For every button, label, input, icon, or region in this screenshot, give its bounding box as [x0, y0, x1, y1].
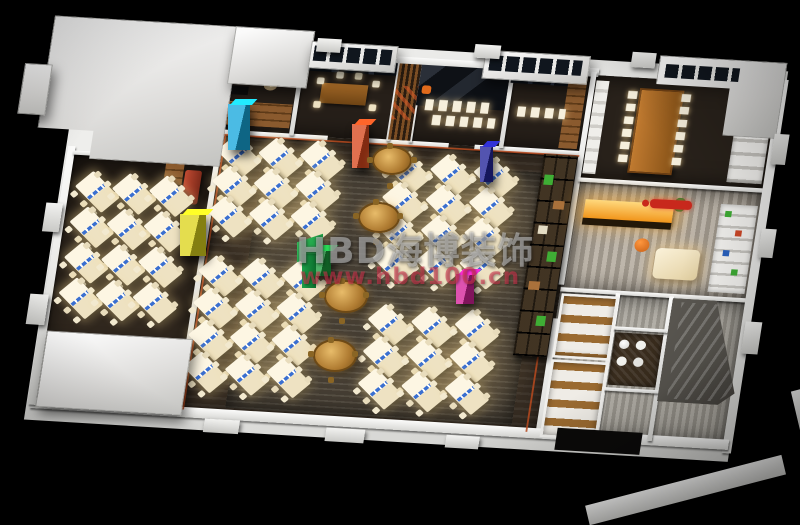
roof-block	[33, 15, 241, 167]
pillar-cyan	[228, 104, 250, 150]
shelf-decor	[725, 211, 732, 217]
shelf-plant	[546, 251, 557, 262]
wall-stub	[445, 435, 480, 450]
shelf-box	[537, 225, 548, 234]
wall-stub	[203, 418, 240, 434]
pillar-yellow	[180, 214, 206, 256]
orange-chair	[421, 85, 432, 94]
lounge-sofa	[652, 248, 701, 281]
shelf-plant	[543, 174, 554, 185]
wall-stub	[316, 38, 342, 53]
wall-stub	[630, 52, 656, 69]
render-canvas: HBD海博装饰 www.hbd100.cn	[0, 0, 800, 525]
tv-screen	[231, 86, 249, 95]
wall-stub	[770, 134, 789, 165]
watermark-url: www.hbd100.cn	[300, 264, 520, 290]
round-meeting-table	[313, 339, 357, 372]
meeting-table	[319, 83, 368, 106]
restroom-vanity	[607, 332, 663, 387]
shelf-plant	[535, 316, 546, 327]
wall-stub	[758, 228, 777, 258]
meeting-chairs	[316, 77, 324, 84]
shelf-box	[552, 201, 564, 210]
shelf-box	[528, 281, 540, 290]
pillar-navy	[480, 146, 493, 182]
wall-stub	[324, 427, 365, 443]
roof-block	[227, 26, 315, 88]
exterior-wall-segment	[585, 455, 786, 525]
wall-stub	[741, 321, 763, 354]
storage-shelves	[552, 293, 619, 361]
exterior-wall-segment	[791, 386, 800, 432]
roof-block	[35, 330, 193, 415]
round-meeting-table	[372, 146, 412, 175]
wall-stub	[473, 44, 501, 59]
